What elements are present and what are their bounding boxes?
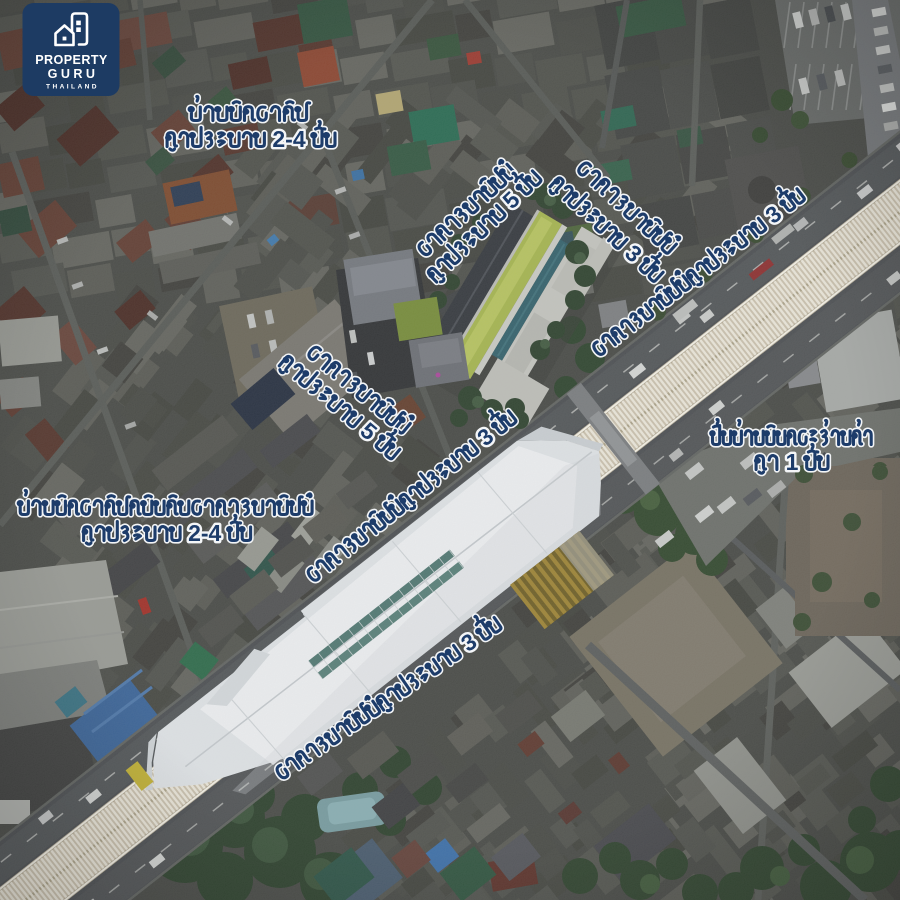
svg-text:2-4: 2-4 (272, 126, 305, 152)
svg-text:THAILAND: THAILAND (46, 84, 99, 91)
svg-text:2-4: 2-4 (188, 520, 221, 546)
svg-text:PROPERTY: PROPERTY (35, 53, 108, 67)
svg-text:GURU: GURU (48, 67, 99, 81)
svg-text:1: 1 (786, 449, 799, 475)
